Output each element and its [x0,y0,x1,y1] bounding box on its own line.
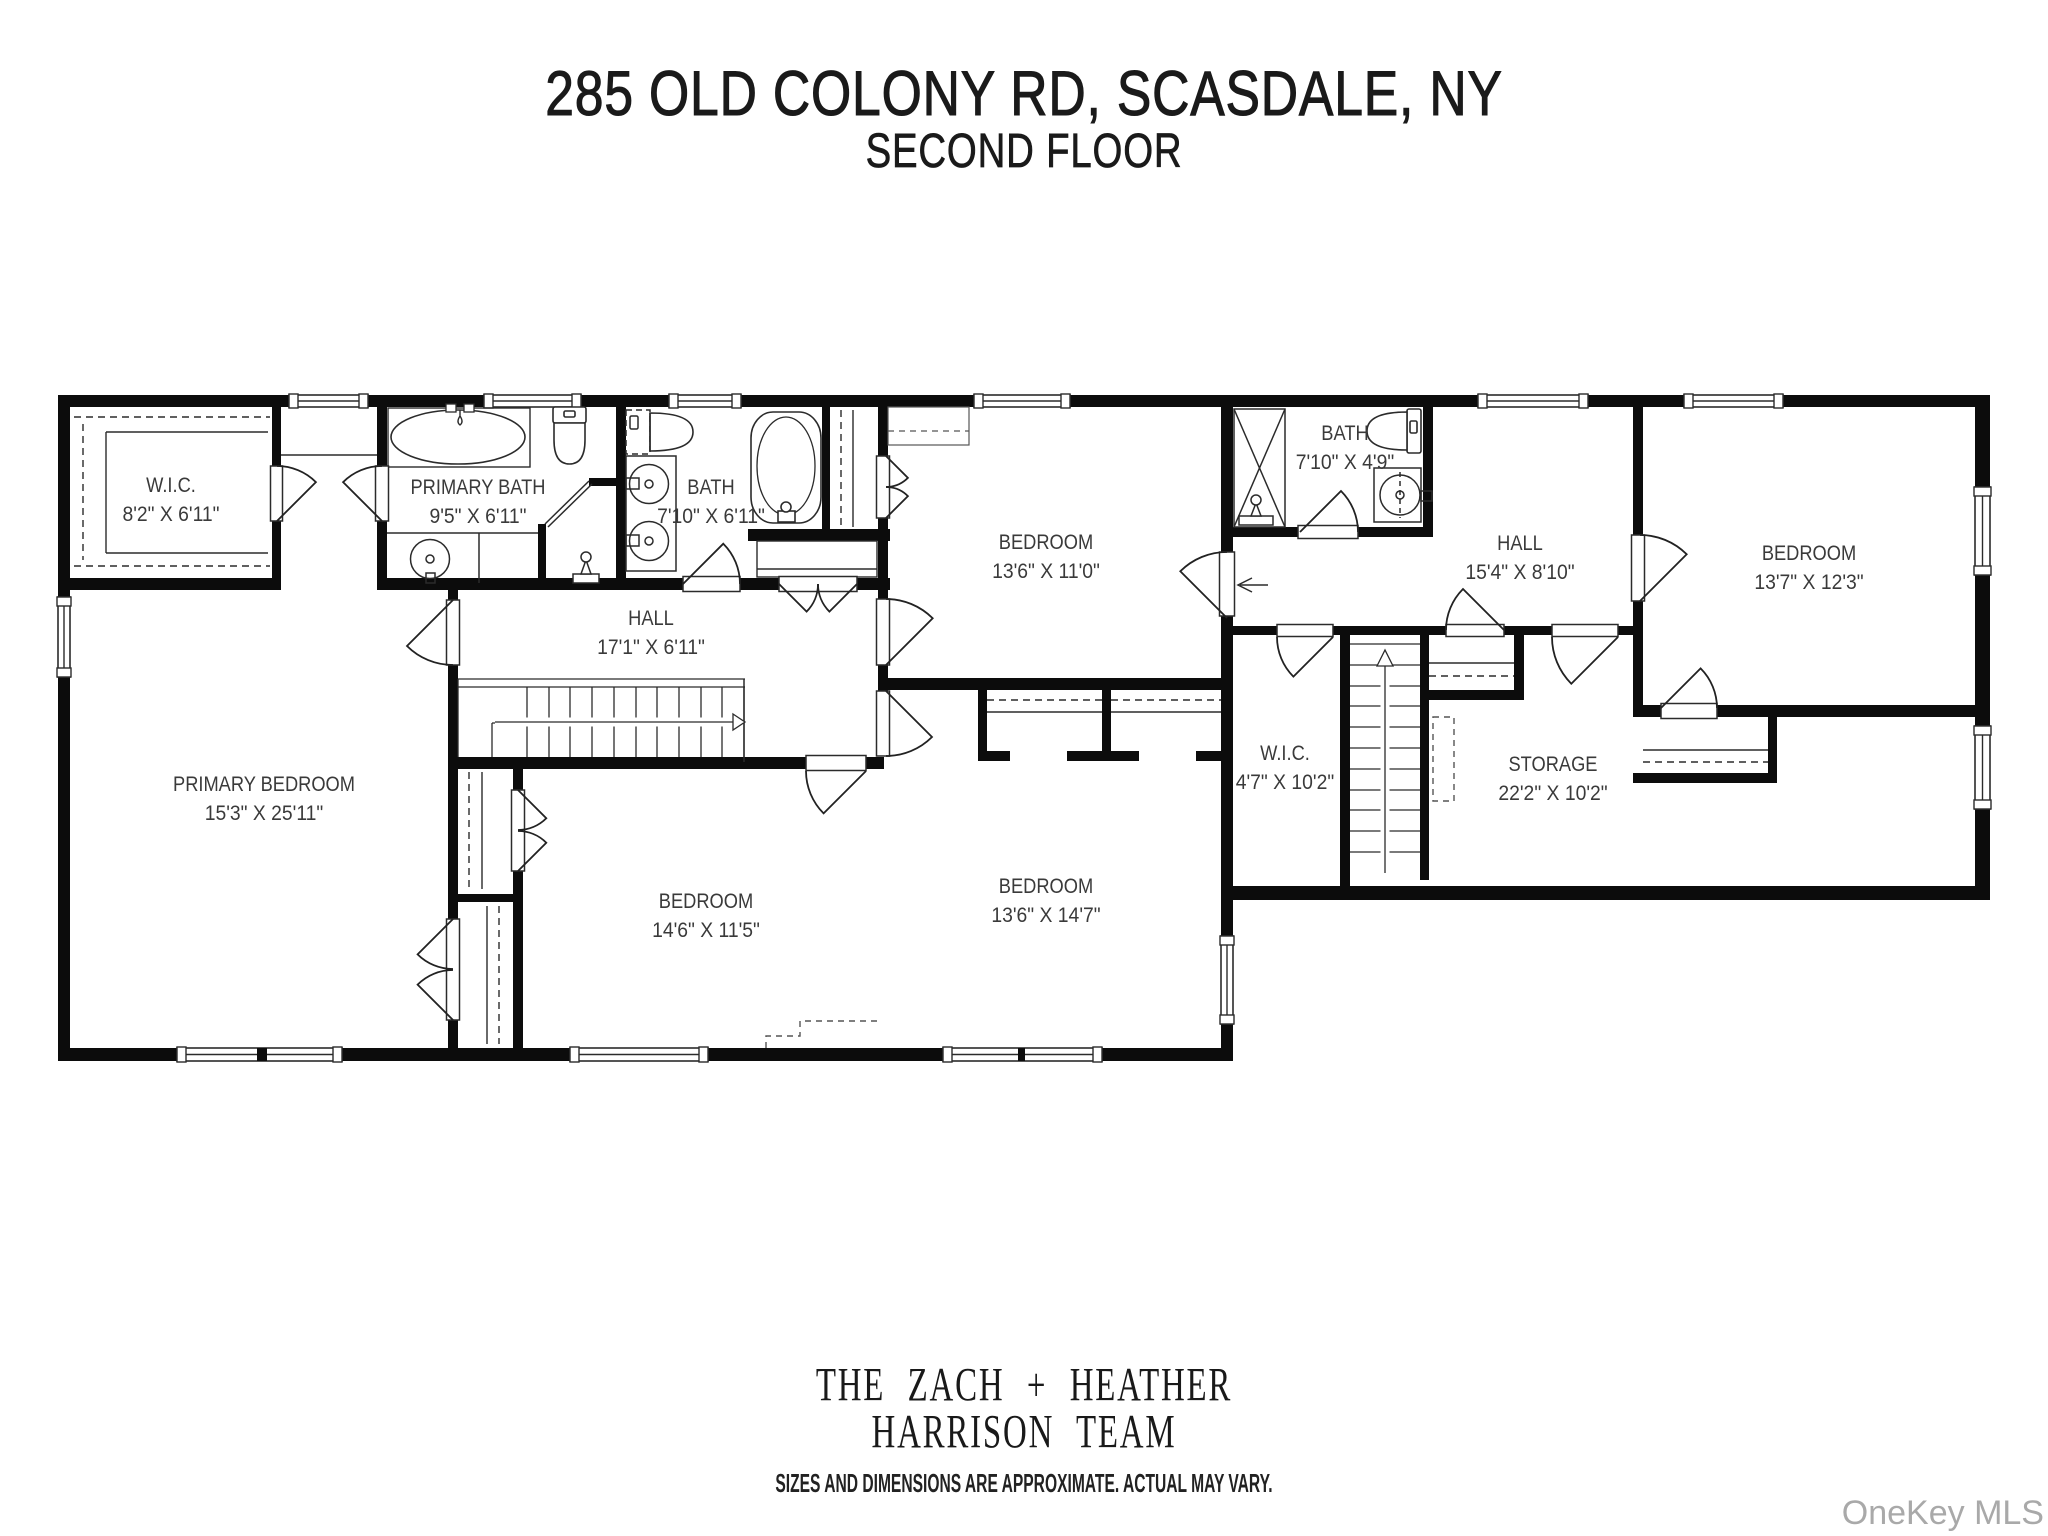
svg-text:HALL: HALL [628,607,674,631]
svg-text:W.I.C.: W.I.C. [1260,742,1310,766]
svg-text:BEDROOM: BEDROOM [659,890,753,914]
svg-text:HALL: HALL [1497,532,1543,556]
svg-text:14'6" X 11'5": 14'6" X 11'5" [652,918,760,942]
svg-text:17'1" X 6'11": 17'1" X 6'11" [597,635,705,659]
svg-text:BATH: BATH [1321,422,1368,446]
svg-text:13'7" X 12'3": 13'7" X 12'3" [1754,570,1863,594]
svg-text:22'2" X 10'2": 22'2" X 10'2" [1498,781,1607,805]
svg-text:BEDROOM: BEDROOM [999,875,1093,899]
svg-text:PRIMARY BEDROOM: PRIMARY BEDROOM [173,773,355,797]
svg-text:7'10" X 4'9": 7'10" X 4'9" [1296,450,1395,474]
svg-text:W.I.C.: W.I.C. [146,474,196,498]
svg-text:9'5" X 6'11": 9'5" X 6'11" [429,504,526,528]
svg-text:STORAGE: STORAGE [1509,753,1598,777]
svg-text:4'7" X 10'2": 4'7" X 10'2" [1236,770,1335,794]
svg-text:PRIMARY BATH: PRIMARY BATH [411,476,546,500]
svg-text:7'10" X 6'11": 7'10" X 6'11" [657,504,765,528]
svg-text:15'4" X 8'10": 15'4" X 8'10" [1465,560,1574,584]
svg-text:BEDROOM: BEDROOM [1762,542,1856,566]
svg-text:13'6" X 11'0": 13'6" X 11'0" [992,559,1100,583]
svg-text:BEDROOM: BEDROOM [999,531,1093,555]
svg-text:8'2" X 6'11": 8'2" X 6'11" [122,502,219,526]
svg-text:13'6" X 14'7": 13'6" X 14'7" [991,903,1100,927]
svg-text:15'3" X 25'11": 15'3" X 25'11" [205,801,324,825]
svg-text:BATH: BATH [687,476,734,500]
